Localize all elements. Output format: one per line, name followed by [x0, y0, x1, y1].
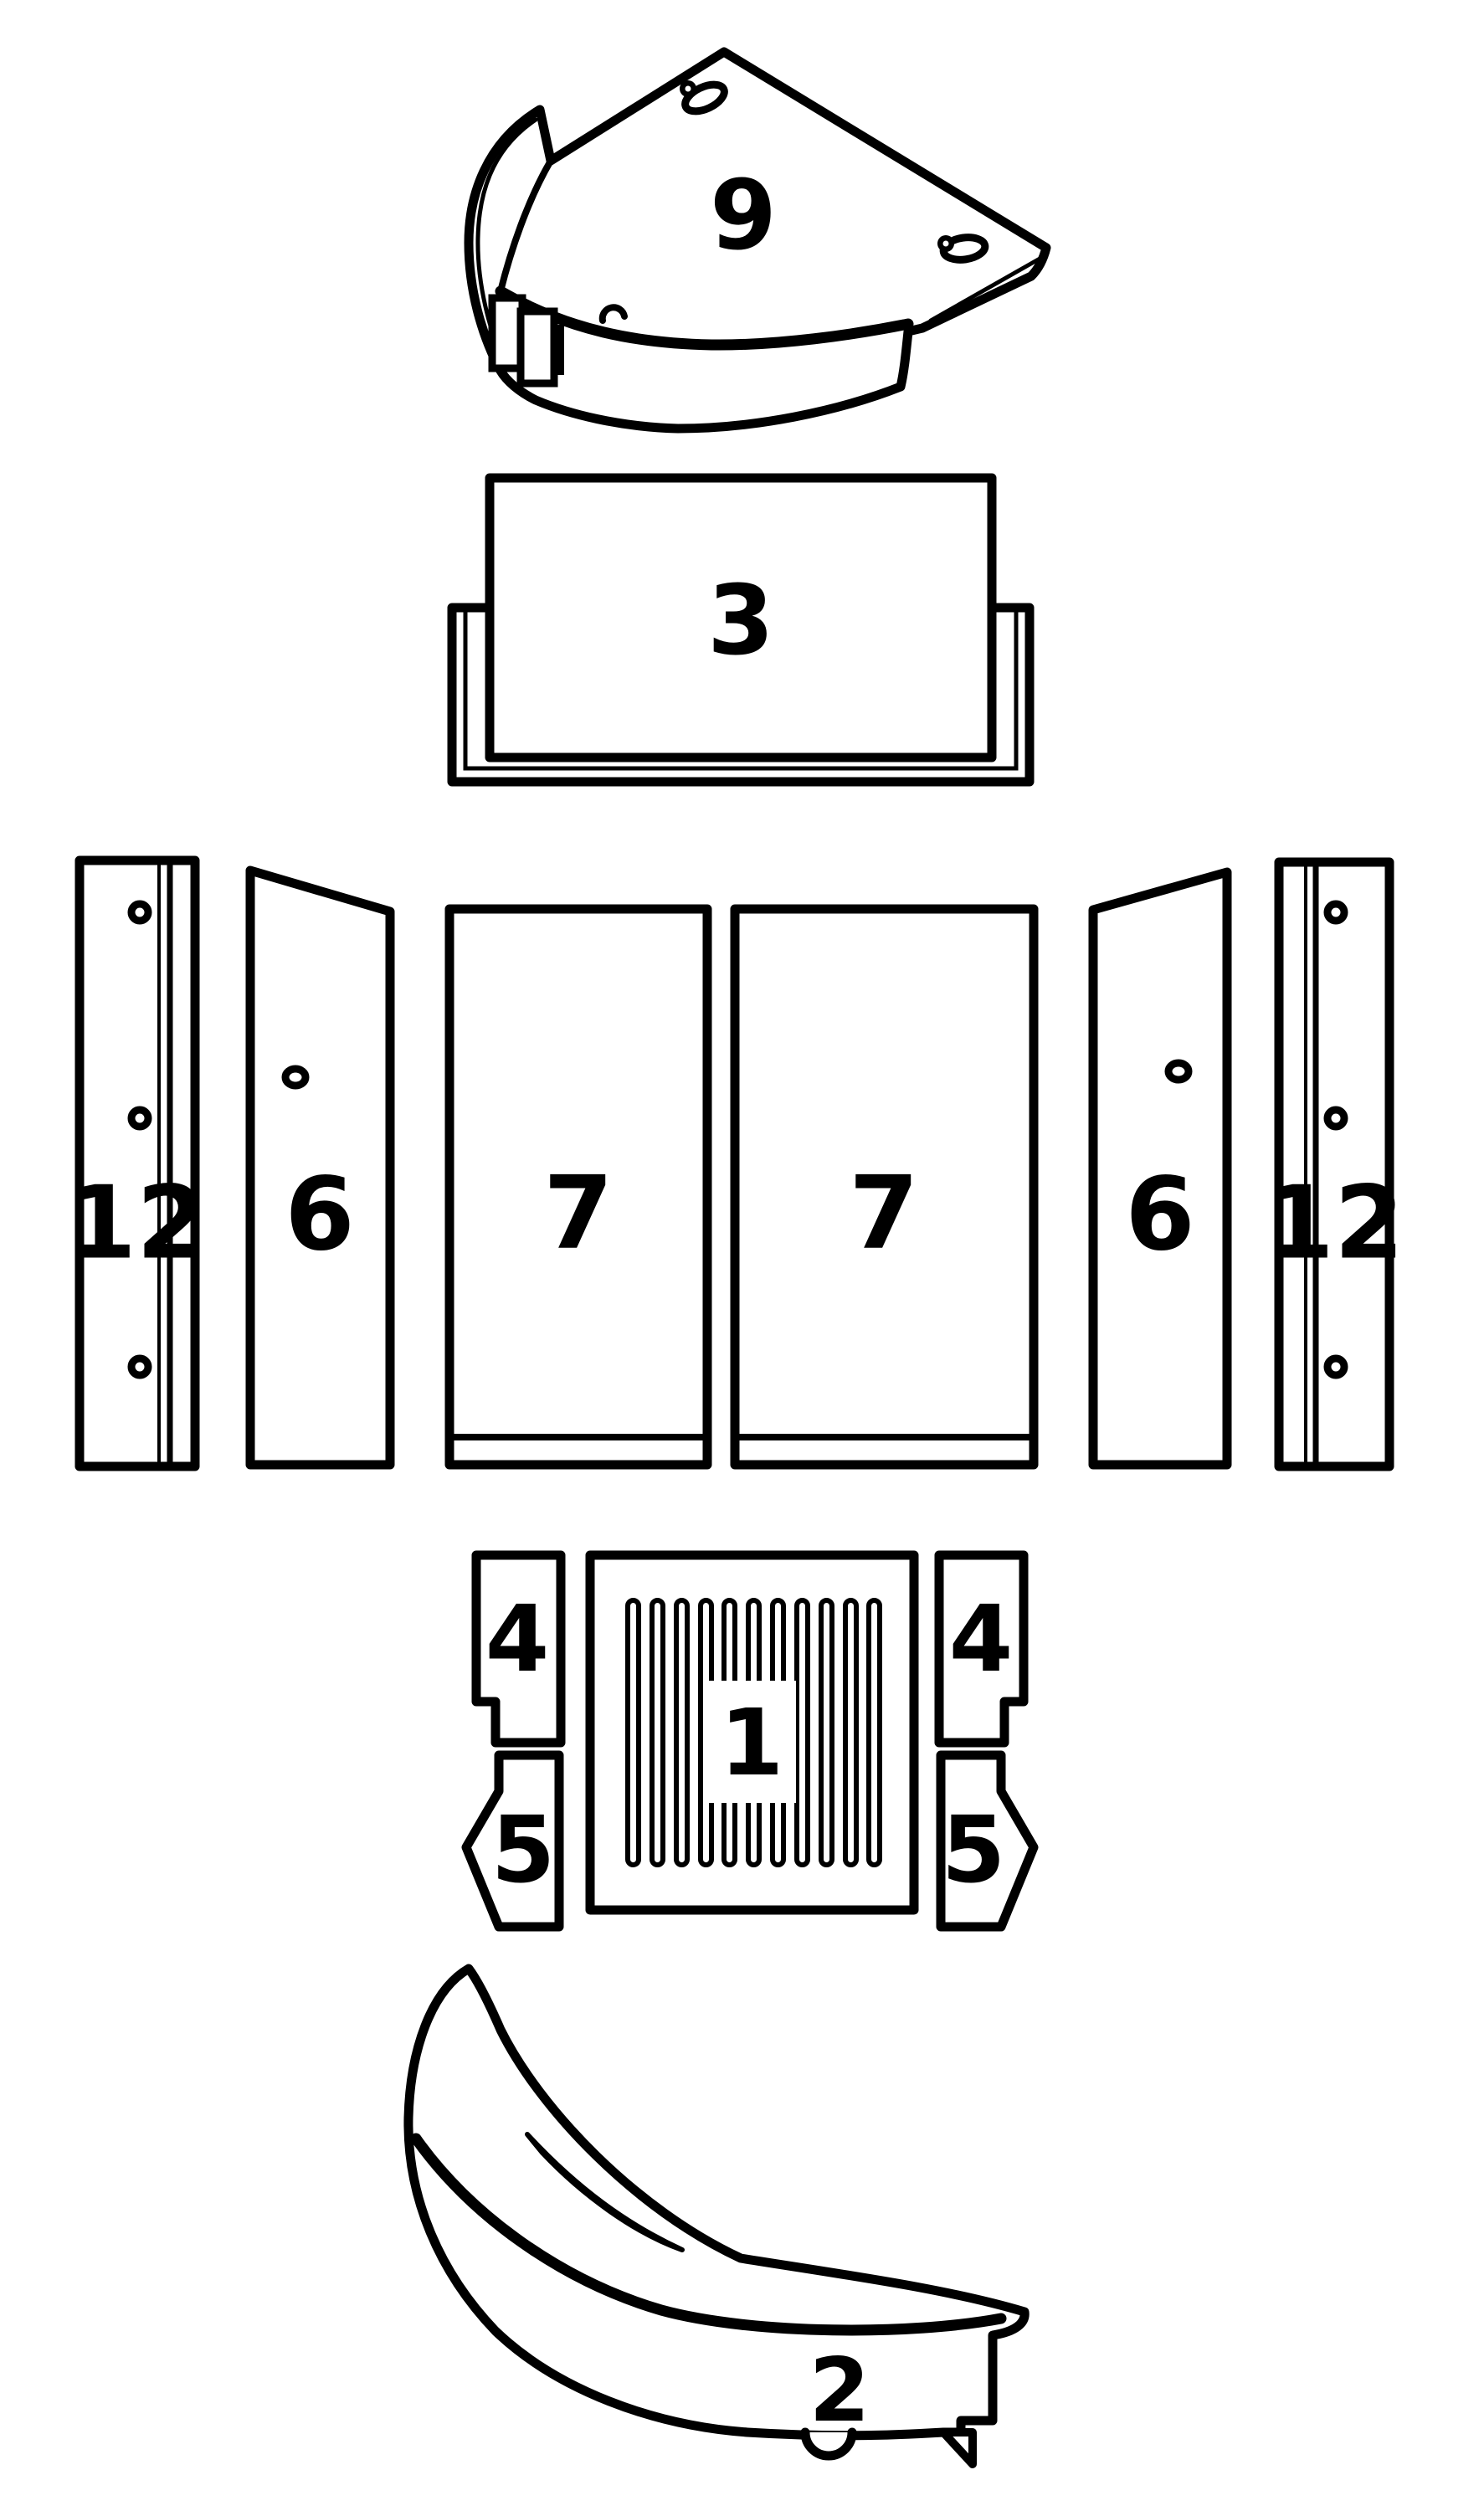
part-1-grate[interactable]: 1: [590, 1555, 914, 1910]
part-12-right-label: 12: [1265, 1166, 1404, 1282]
part-9-label: 9: [710, 160, 777, 272]
part-1-label: 1: [720, 1689, 784, 1796]
part-12-side-liner-left[interactable]: 12: [67, 860, 207, 1466]
part-6-side-liner-right[interactable]: 6: [1093, 872, 1227, 1465]
part-3-label: 3: [707, 565, 774, 677]
part-6-left-label: 6: [285, 1158, 355, 1274]
part-7-back-liner-left[interactable]: 7: [449, 909, 707, 1465]
part-4-left-label: 4: [485, 1585, 550, 1692]
part-2-body: [408, 1969, 1024, 2436]
part-12-side-liner-right[interactable]: 12: [1265, 862, 1404, 1466]
part-5-grate-bar-front-right[interactable]: 5: [941, 1755, 1034, 1927]
part-5-grate-bar-front-left[interactable]: 5: [466, 1755, 559, 1927]
part-7-back-liner-right[interactable]: 7: [735, 909, 1034, 1465]
part-12-left-label: 12: [67, 1166, 207, 1282]
part-2-log-retainer[interactable]: 2: [408, 1969, 1024, 2464]
part-2-label: 2: [809, 2339, 870, 2442]
part-4-grate-bar-right[interactable]: 4: [939, 1555, 1024, 1743]
part-5-right-label: 5: [942, 1796, 1006, 1903]
part-7-right-label: 7: [849, 1156, 919, 1272]
part-5-left-label: 5: [491, 1796, 556, 1903]
part-4-right-label: 4: [949, 1585, 1014, 1692]
parts-diagram-canvas: 9 3 12 6 7 7 6: [0, 0, 1484, 2511]
part-9-baffle-plate[interactable]: 9: [469, 52, 1046, 429]
part-4-grate-bar-left[interactable]: 4: [476, 1555, 561, 1743]
part-7-left-label: 7: [543, 1156, 614, 1272]
part-6-side-liner-left[interactable]: 6: [250, 870, 390, 1465]
part-2-tab: [943, 2432, 973, 2464]
part-6-right-label: 6: [1125, 1158, 1195, 1274]
part-9-keyhole-slot-right: [937, 235, 987, 263]
part-3-back-panel[interactable]: 3: [452, 478, 1030, 782]
